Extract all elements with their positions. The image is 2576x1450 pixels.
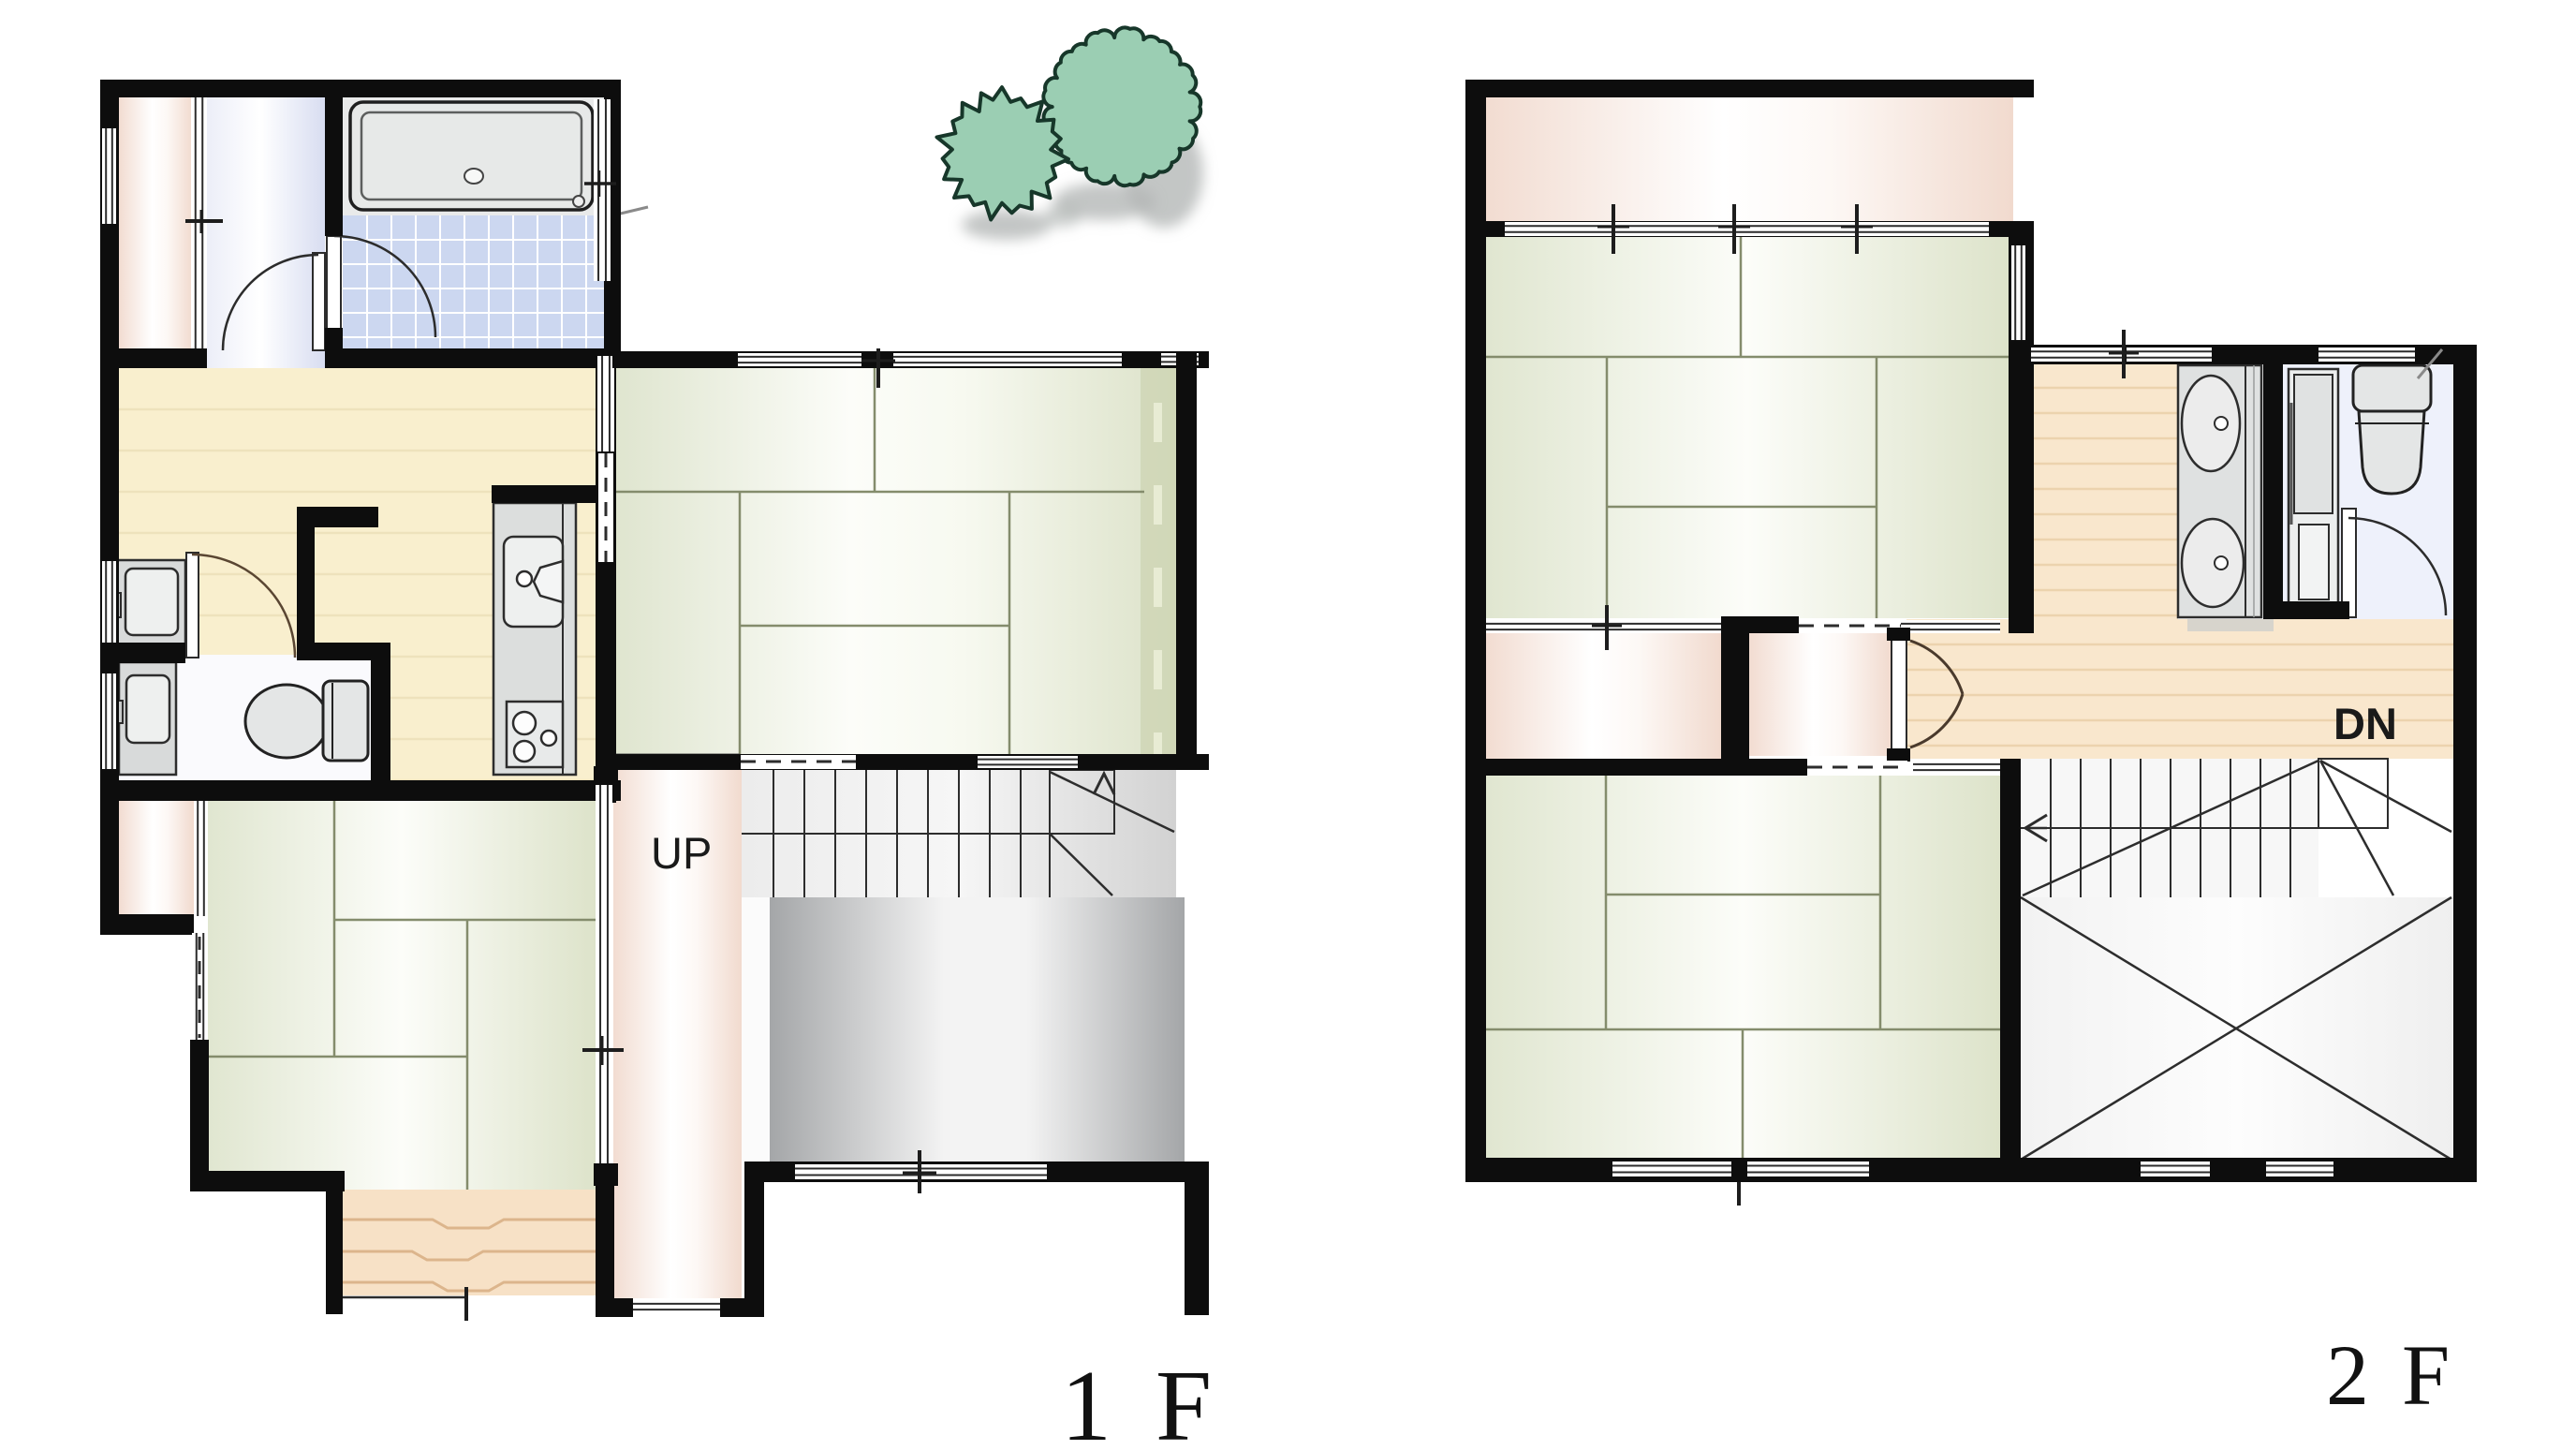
svg-text:2 F: 2 F <box>2326 1327 2455 1423</box>
svg-text:UP: UP <box>651 828 712 878</box>
svg-text:DN: DN <box>2333 699 2397 748</box>
svg-text:1 F: 1 F <box>1061 1351 1221 1450</box>
